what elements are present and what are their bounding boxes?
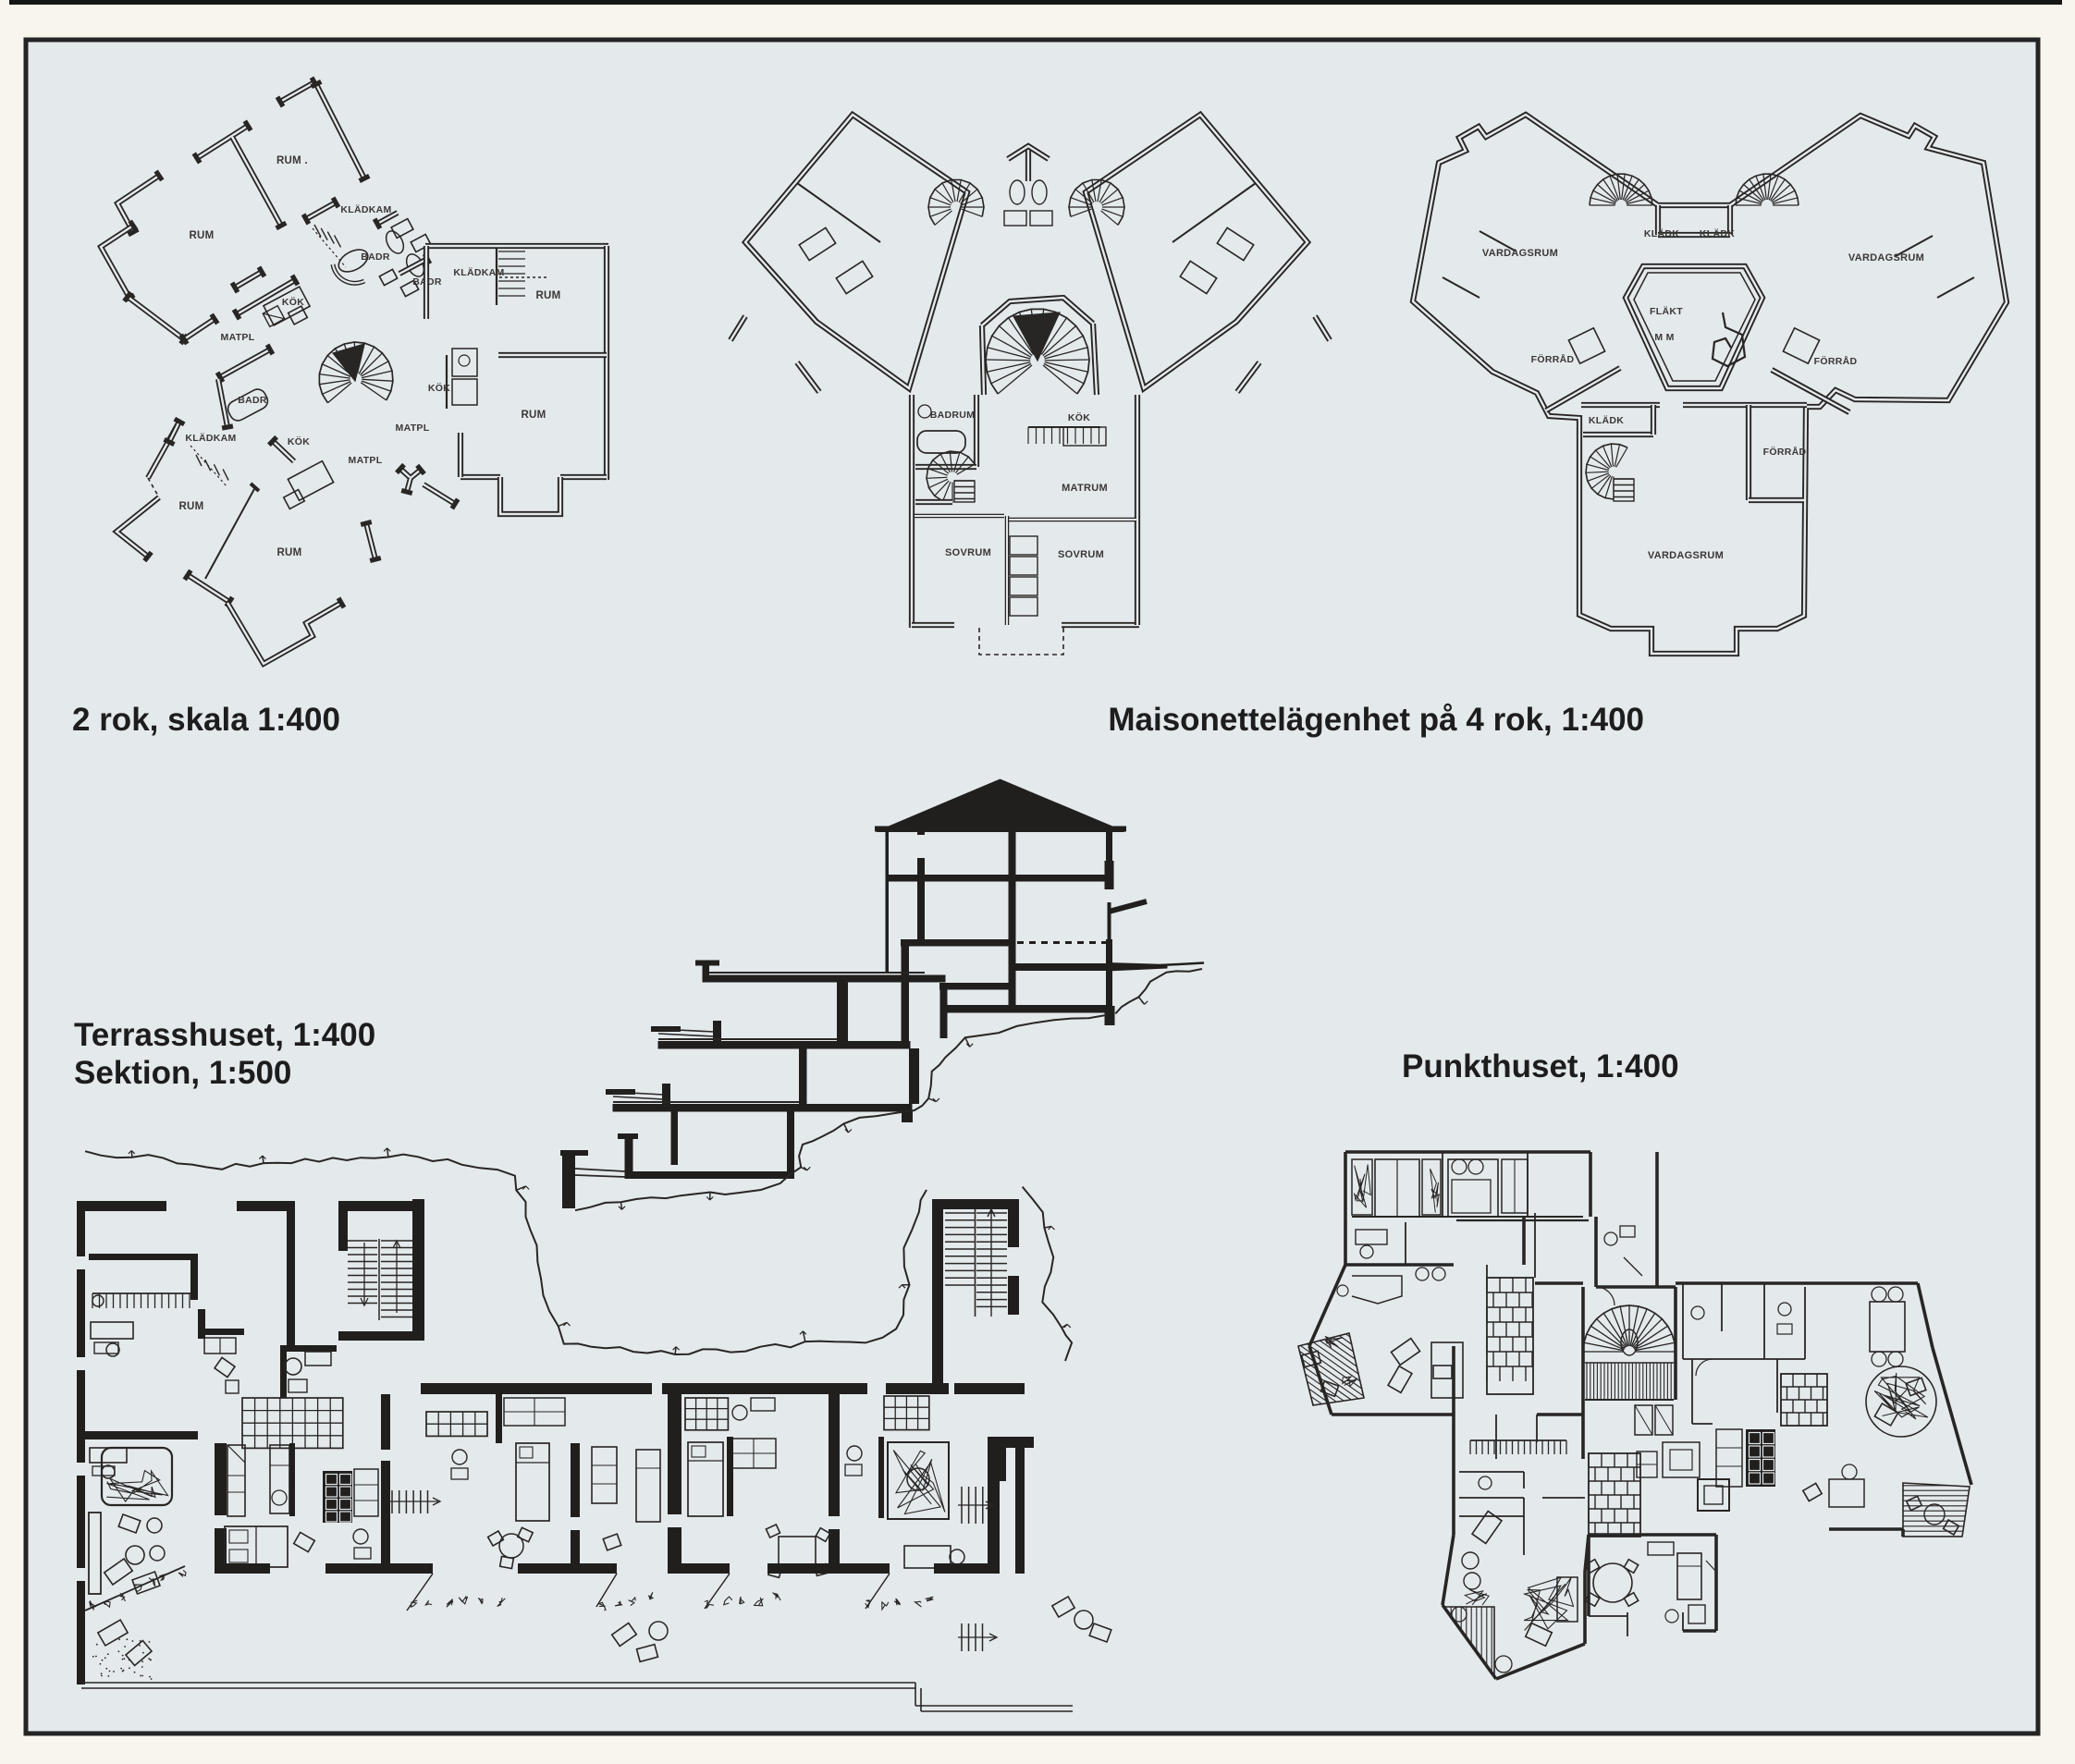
svg-text:Sektion, 1:500: Sektion, 1:500 <box>74 1055 291 1091</box>
svg-text:SOVRUM: SOVRUM <box>945 547 991 558</box>
svg-text:VARDAGSRUM: VARDAGSRUM <box>1648 550 1724 561</box>
svg-text:MATPL: MATPL <box>396 423 430 434</box>
svg-text:SOVRUM: SOVRUM <box>1058 549 1104 560</box>
svg-text:KÖK: KÖK <box>288 435 310 447</box>
svg-text:M M: M M <box>1654 332 1674 343</box>
svg-text:RUM: RUM <box>276 547 301 558</box>
svg-text:VARDAGSRUM: VARDAGSRUM <box>1482 248 1558 259</box>
svg-text:Maisonettelägenhet på 4 rok,: Maisonettelägenhet på 4 rok, 1:400 <box>1108 702 1644 738</box>
svg-text:2 rok, skala 1:400: 2 rok, skala 1:400 <box>72 702 340 738</box>
svg-text:RUM: RUM <box>521 410 546 421</box>
svg-text:FÖRRÅD: FÖRRÅD <box>1531 353 1575 365</box>
svg-text:BADR: BADR <box>361 251 390 263</box>
svg-text:Punkthuset, 1:400: Punkthuset, 1:400 <box>1402 1048 1679 1084</box>
svg-text:BADR: BADR <box>238 395 267 406</box>
svg-text:MATPL: MATPL <box>349 455 383 466</box>
svg-text:KLÄDK: KLÄDK <box>1700 227 1735 239</box>
svg-text:BADRUM: BADRUM <box>930 410 975 421</box>
svg-text:KLÄDK: KLÄDK <box>1589 414 1624 426</box>
svg-text:FÖRRÅD: FÖRRÅD <box>1763 446 1807 458</box>
svg-text:KÖK: KÖK <box>428 382 450 394</box>
svg-text:KÖK: KÖK <box>1068 411 1090 423</box>
svg-text:VARDAGSRUM: VARDAGSRUM <box>1848 252 1924 263</box>
svg-text:FLÄKT: FLÄKT <box>1650 305 1683 317</box>
svg-text:KLÄDK: KLÄDK <box>1644 227 1679 239</box>
svg-text:RUM: RUM <box>178 501 203 512</box>
svg-text:RUM .: RUM . <box>276 155 308 166</box>
svg-text:KLÄDKAM: KLÄDKAM <box>185 432 236 444</box>
svg-text:MATRUM: MATRUM <box>1062 483 1108 494</box>
svg-text:RUM: RUM <box>535 290 560 301</box>
svg-text:MATPL: MATPL <box>221 332 255 343</box>
svg-text:KLÄDKAM: KLÄDKAM <box>340 203 391 215</box>
svg-text:Terrasshuset, 1:400: Terrasshuset, 1:400 <box>74 1017 375 1053</box>
svg-text:FÖRRÅD: FÖRRÅD <box>1814 355 1858 367</box>
svg-text:RUM: RUM <box>189 230 214 241</box>
svg-text:KLÄDKAM: KLÄDKAM <box>453 266 504 278</box>
